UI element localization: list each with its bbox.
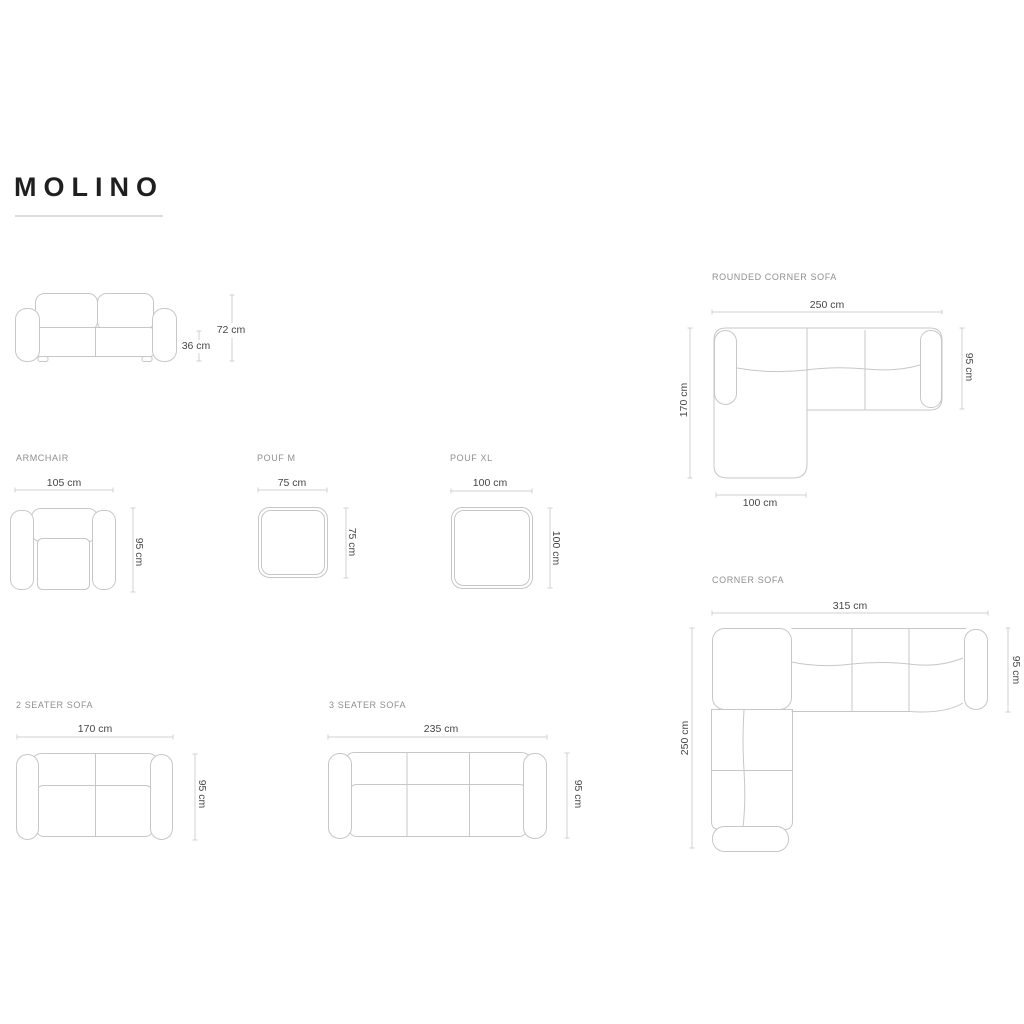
armchair-depth-dim: 95 cm bbox=[133, 538, 145, 567]
label-two-seater: 2 SEATER SOFA bbox=[16, 700, 93, 710]
pouf-xl-depth-dim: 100 cm bbox=[550, 531, 562, 565]
three-seater-width-dim: 235 cm bbox=[424, 723, 458, 735]
pouf-xl-drawing bbox=[452, 508, 533, 589]
corner-sofa-depth-dim: 95 cm bbox=[1010, 656, 1022, 685]
label-pouf-xl: POUF XL bbox=[450, 453, 493, 463]
rounded-corner-sofa-chaise-width-dim: 100 cm bbox=[743, 497, 777, 509]
rounded-corner-sofa-total-depth-dim: 170 cm bbox=[678, 383, 690, 417]
label-corner-sofa: CORNER SOFA bbox=[712, 575, 784, 585]
label-three-seater: 3 SEATER SOFA bbox=[329, 700, 406, 710]
corner-sofa-width-dim: 315 cm bbox=[833, 600, 867, 612]
molino-dimensions-page: MOLINO ARMCHAIR POUF M POUF XL ROUNDED C… bbox=[0, 0, 1024, 1024]
page-title: MOLINO bbox=[14, 172, 164, 203]
two-seater-width-dim: 170 cm bbox=[78, 723, 112, 735]
corner-sofa-total-depth-dim: 250 cm bbox=[679, 721, 691, 755]
three-seater-depth-dim: 95 cm bbox=[572, 780, 584, 809]
armchair-drawing bbox=[11, 509, 116, 590]
rounded-corner-sofa-width-dim: 250 cm bbox=[810, 299, 844, 311]
sofa-front-height-dim: 72 cm bbox=[217, 324, 246, 336]
pouf-m-depth-dim: 75 cm bbox=[346, 528, 358, 557]
title-underline bbox=[15, 215, 163, 217]
pouf-xl-width-dim: 100 cm bbox=[473, 477, 507, 489]
rounded-corner-sofa-drawing bbox=[714, 328, 942, 478]
label-armchair: ARMCHAIR bbox=[16, 453, 69, 463]
three-seater-drawing bbox=[329, 753, 547, 839]
pouf-m-width-dim: 75 cm bbox=[278, 477, 307, 489]
armchair-width-dim: 105 cm bbox=[47, 477, 81, 489]
two-seater-depth-dim: 95 cm bbox=[196, 780, 208, 809]
pouf-m-drawing bbox=[259, 508, 328, 578]
two-seater-drawing bbox=[17, 754, 173, 840]
rounded-corner-sofa-depth-dim: 95 cm bbox=[963, 353, 975, 382]
furniture-line-art bbox=[0, 0, 1024, 1024]
corner-sofa-drawing bbox=[712, 629, 988, 852]
sofa-front-seat-height-dim: 36 cm bbox=[182, 340, 211, 352]
sofa-front-view-drawing bbox=[16, 294, 177, 362]
label-rounded-corner-sofa: ROUNDED CORNER SOFA bbox=[712, 272, 837, 282]
label-pouf-m: POUF M bbox=[257, 453, 296, 463]
